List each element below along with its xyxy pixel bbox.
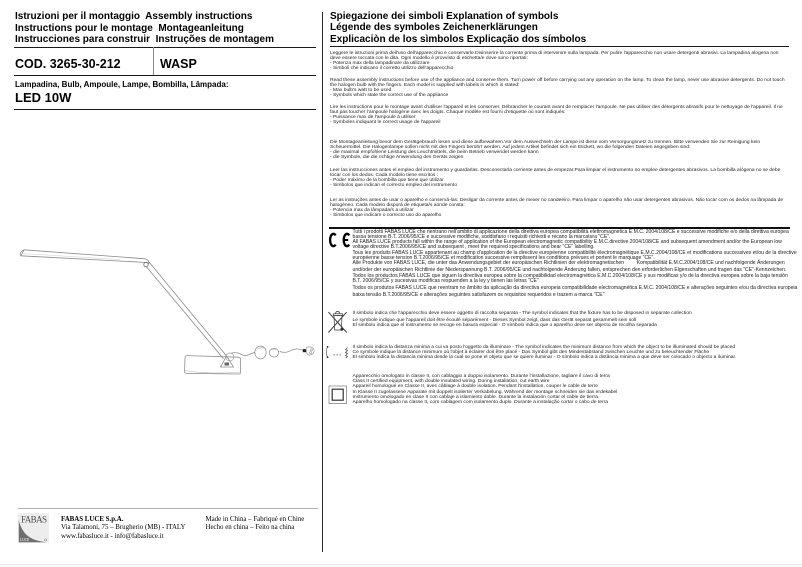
svg-text:FABAS: FABAS — [21, 514, 47, 524]
svg-text:LUCE: LUCE — [20, 538, 30, 542]
